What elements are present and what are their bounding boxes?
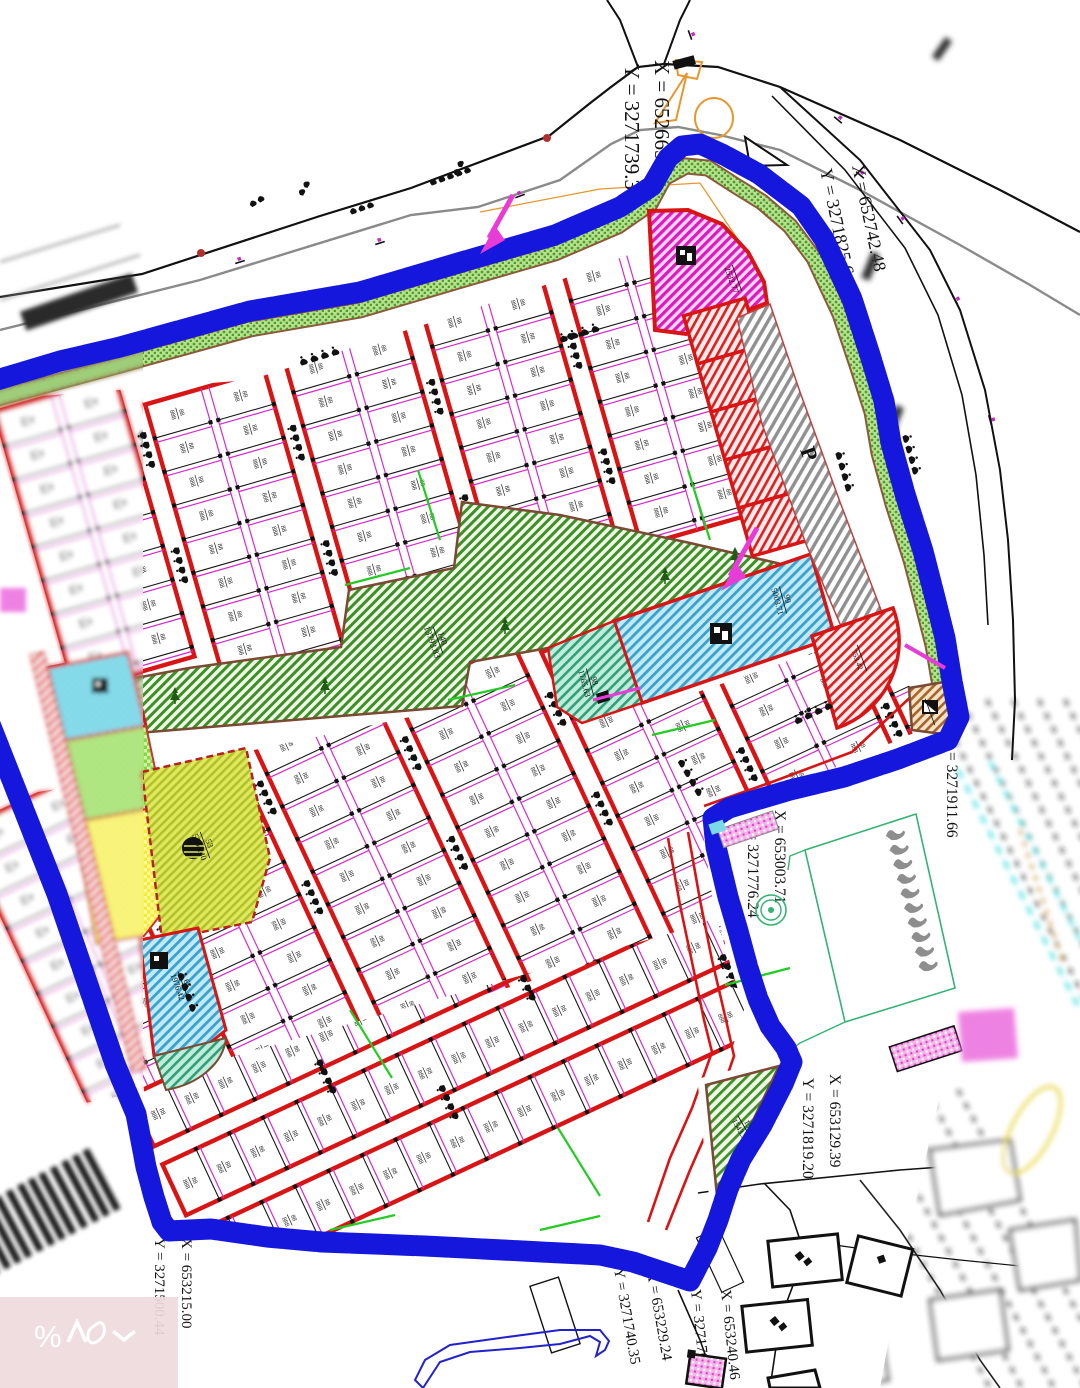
svg-text:Y = 3271739.35: Y = 3271739.35: [620, 64, 644, 200]
svg-text:Y = 3271819.20: Y = 3271819.20: [799, 1078, 816, 1179]
svg-text:= 3271911.66: = 3271911.66: [943, 752, 960, 838]
svg-text:X = 653215.00: X = 653215.00: [178, 1238, 194, 1329]
svg-text:%: %: [34, 1319, 62, 1354]
svg-text:X = 653129.39: X = 653129.39: [826, 1074, 843, 1168]
